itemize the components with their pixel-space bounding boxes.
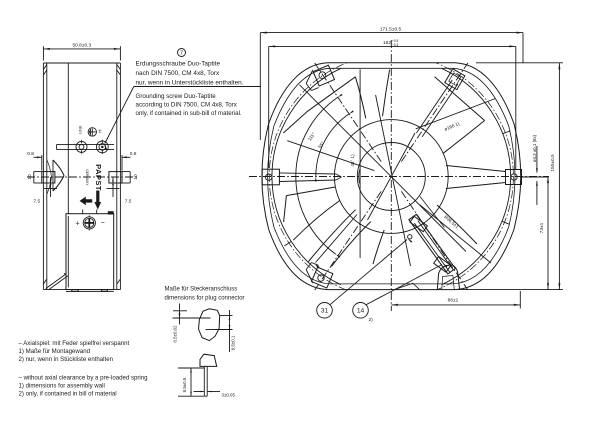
svg-text:7.5: 7.5 — [34, 198, 41, 204]
svg-text:only, if contained in sub-bill: only, if contained in sub-bill of materi… — [136, 110, 242, 117]
svg-text:dimensions for plug connector: dimensions for plug connector — [165, 295, 245, 301]
svg-text:– without axial clearance by a: – without axial clearance by a pre-loade… — [19, 375, 148, 382]
svg-text:150±0.5: 150±0.5 — [550, 154, 556, 172]
svg-text:0.5±0.02: 0.5±0.02 — [173, 325, 178, 343]
svg-text:14: 14 — [357, 308, 365, 315]
svg-text:7.5: 7.5 — [125, 198, 132, 204]
svg-text:0.8: 0.8 — [27, 151, 34, 157]
svg-text:31: 31 — [321, 308, 329, 315]
svg-text:Erdungsschraube Duo-Taptite: Erdungsschraube Duo-Taptite — [136, 61, 221, 68]
svg-text:nur, wenn in Unterstückliste e: nur, wenn in Unterstückliste enthalten. — [136, 79, 244, 86]
svg-text:10: 10 — [133, 174, 139, 180]
svg-text:171.5±0.5: 171.5±0.5 — [380, 26, 402, 32]
svg-text:7: 7 — [180, 51, 183, 57]
svg-text:Grounding screw Duo-Taptite: Grounding screw Duo-Taptite — [136, 93, 217, 100]
svg-text:73±1: 73±1 — [539, 222, 545, 233]
svg-text:162: 162 — [383, 40, 391, 46]
svg-text:8.5±0.5: 8.5±0.5 — [182, 377, 187, 392]
svg-text:GERMANY: GERMANY — [85, 169, 89, 186]
svg-text:1) dimensions for assembly wal: 1) dimensions for assembly wall — [19, 383, 105, 390]
svg-text:0.8: 0.8 — [130, 151, 137, 157]
svg-text:8.5±0.1: 8.5±0.1 — [231, 335, 236, 350]
svg-text:nach DIN 7500, CM 4x8, Torx: nach DIN 7500, CM 4x8, Torx — [136, 70, 221, 77]
svg-text:2) only, if contained in bill: 2) only, if contained in bill of materia… — [19, 391, 117, 398]
svg-text:3±0.05: 3±0.05 — [222, 392, 236, 397]
svg-text:−: − — [101, 220, 105, 227]
svg-text:86±1: 86±1 — [448, 297, 459, 303]
svg-text:45° 1): 45° 1) — [350, 154, 355, 167]
svg-text:Maße für Steckeranschluss: Maße für Steckeranschluss — [165, 287, 238, 293]
svg-text:2): 2) — [369, 317, 374, 323]
svg-text:2) nur, wenn in Stückliste ent: 2) nur, wenn in Stückliste enthalten — [19, 356, 114, 363]
svg-text:LINE: LINE — [79, 125, 83, 134]
svg-text:H: H — [98, 130, 103, 133]
svg-text:−0.3: −0.3 — [392, 43, 399, 47]
svg-text:10: 10 — [27, 174, 33, 180]
svg-text:50.8±0.3: 50.8±0.3 — [73, 42, 92, 48]
svg-text:according to DIN 7500, CM 4x8,: according to DIN 7500, CM 4x8, Torx — [136, 101, 238, 108]
svg-text:1) Maße für Montagewand: 1) Maße für Montagewand — [19, 348, 90, 355]
svg-text:+: + — [75, 221, 79, 228]
svg-text:ø4.3 ±0.1 (8x): ø4.3 ±0.1 (8x) — [532, 134, 537, 162]
svg-text:PAPST: PAPST — [94, 164, 103, 191]
svg-text:– Axialspiel: mit Feder spielf: – Axialspiel: mit Feder spielfrei verspa… — [19, 340, 130, 347]
